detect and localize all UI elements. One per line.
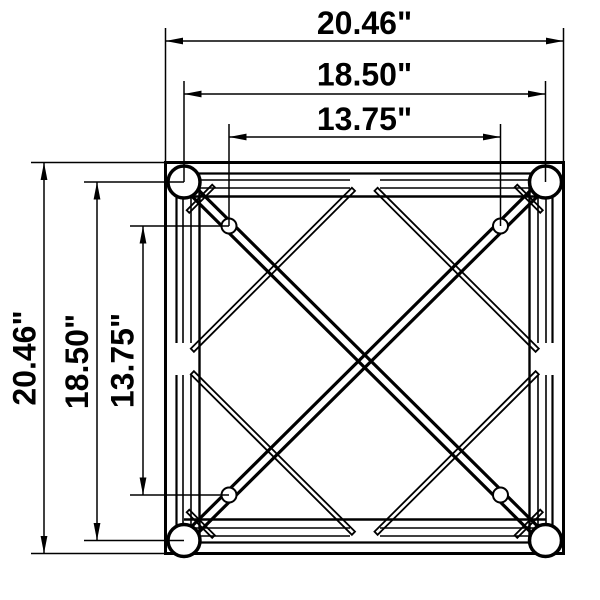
- dim-label-tube-center-height: 18.50": [59, 314, 95, 409]
- truss-drawing: 20.46" 18.50" 13.75" 20.46" 18.50": [0, 0, 600, 600]
- dim-label-outer-width: 20.46": [317, 5, 412, 41]
- dim-label-hole-center-height: 13.75": [105, 313, 141, 408]
- dim-label-outer-height: 20.46": [7, 310, 43, 405]
- dim-label-hole-center-width: 13.75": [317, 101, 412, 137]
- chord-tube-bottom-right: [530, 525, 562, 557]
- dim-label-tube-center-width: 18.50": [317, 57, 412, 93]
- hole-bottom-right: [493, 488, 508, 503]
